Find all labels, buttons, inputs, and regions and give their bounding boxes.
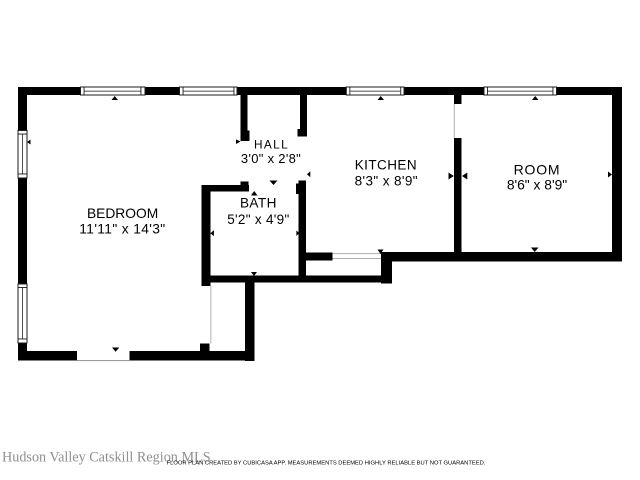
- svg-text:FLOOR PLAN CREATED BY CUBICASA: FLOOR PLAN CREATED BY CUBICASA APP. MEAS…: [167, 461, 486, 467]
- svg-text:BEDROOM: BEDROOM: [87, 206, 158, 221]
- svg-text:8'3" x 8'9": 8'3" x 8'9": [355, 173, 418, 188]
- svg-text:11'11" x 14'3": 11'11" x 14'3": [79, 222, 165, 237]
- svg-text:KITCHEN: KITCHEN: [355, 157, 417, 172]
- svg-text:BATH: BATH: [240, 196, 277, 211]
- svg-text:8'6" x 8'9": 8'6" x 8'9": [507, 178, 567, 193]
- svg-text:ROOM: ROOM: [514, 162, 561, 178]
- svg-text:HALL: HALL: [254, 138, 289, 152]
- svg-text:5'2" x 4'9": 5'2" x 4'9": [227, 212, 289, 227]
- svg-text:3'0" x 2'8": 3'0" x 2'8": [241, 151, 301, 166]
